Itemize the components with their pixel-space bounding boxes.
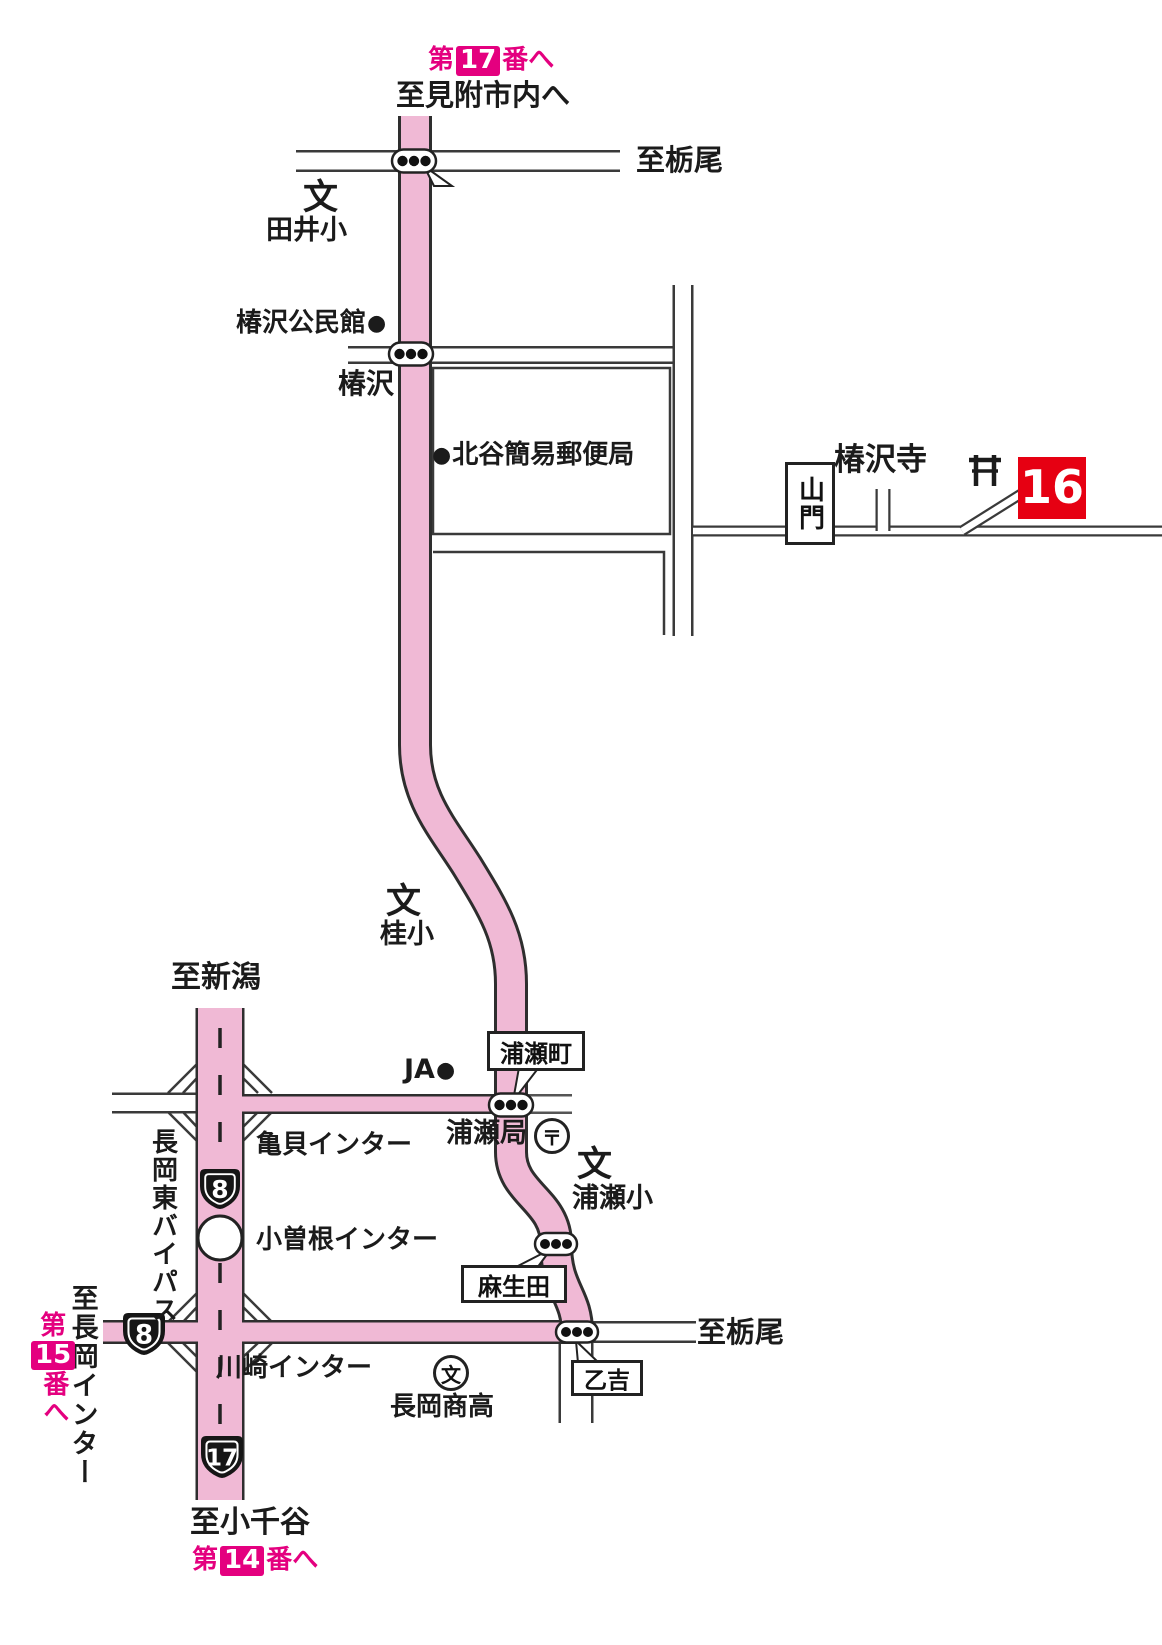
post-office-icon: 〒: [534, 1118, 570, 1154]
kawasaki-ic-label: 川崎インター: [216, 1355, 372, 1383]
tsubakizawa-temple-label: 椿沢寺: [834, 444, 927, 477]
to-temple17-link: 第17番へ: [428, 46, 554, 76]
kamegai-ic-label: 亀貝インター: [256, 1132, 412, 1160]
temple15-suffix: 番へ: [39, 1370, 67, 1426]
svg-text:8: 8: [135, 1320, 153, 1350]
signal-tai: [392, 150, 436, 173]
torii-icon: [969, 455, 1001, 486]
to-mitsuke-label: 至見附市内へ: [396, 80, 570, 111]
temple14-suffix: 番へ: [266, 1545, 318, 1575]
ja-label: JA●: [404, 1056, 455, 1085]
city-blocks: [433, 368, 670, 635]
to-tochio-north-label: 至栃尾: [636, 145, 723, 176]
tsubakizawa-community-center-label: 椿沢公民館●: [236, 310, 386, 338]
asoda-signal-box: 麻生田: [461, 1265, 567, 1303]
urasemachi-signal-box: 浦瀬町: [487, 1031, 585, 1071]
poi-dot-icon: ●: [436, 1059, 455, 1082]
katsura-elementary-label: 桂小: [380, 921, 434, 950]
temple14-prefix: 第: [192, 1545, 218, 1575]
community-center-text: 椿沢公民館: [236, 310, 366, 338]
pilgrimage-route-map: 16 8 8 17 第17番へ 至見附市内へ 至栃尾 文 田井小 椿沢公民館● …: [0, 0, 1162, 1645]
temple17-number-box: 17: [456, 46, 500, 76]
tsubakizawa-signal-label: 椿沢: [338, 369, 394, 399]
ja-text: JA: [404, 1056, 435, 1085]
temple15-prefix: 第: [40, 1313, 66, 1341]
temple17-prefix: 第: [428, 45, 454, 75]
temple14-number-box: 14: [220, 1546, 264, 1576]
temple17-suffix: 番へ: [502, 45, 554, 75]
kitadani-post-office-label: ●北谷簡易郵便局: [432, 442, 634, 470]
temple15-number-box: 15: [31, 1341, 75, 1371]
signal-tsubakizawa: [389, 343, 433, 366]
to-temple14-link: 第14番へ: [192, 1546, 318, 1576]
signal-urasemachi: [489, 1094, 533, 1117]
signal-otoyoshi: [556, 1322, 598, 1343]
poi-dot-icon: ●: [432, 444, 451, 467]
ozone-interchange-circle: [198, 1216, 242, 1260]
sanmon-gate-box: 山門: [785, 462, 835, 545]
urase-elementary-label: 浦瀬小: [572, 1185, 653, 1214]
to-tochio-south-label: 至栃尾: [697, 1317, 784, 1348]
tai-elementary-label: 田井小: [266, 217, 347, 246]
school-icon-urase: 文: [577, 1147, 612, 1184]
svg-text:8: 8: [211, 1175, 228, 1204]
school-icon-katsura: 文: [386, 884, 421, 921]
school-icon-tai: 文: [303, 180, 338, 217]
to-ojiya-label: 至小千谷: [190, 1507, 310, 1539]
signal-asoda: [535, 1233, 577, 1255]
map-canvas: 16 8 8 17: [0, 0, 1162, 1645]
temple16-marker: 16: [1018, 457, 1086, 519]
high-school-icon: 文: [433, 1355, 469, 1391]
temple16-number: 16: [1020, 460, 1084, 514]
poi-dot-icon: ●: [367, 312, 386, 335]
to-niigata-label: 至新潟: [171, 962, 261, 994]
urase-post-office-label: 浦瀬局: [446, 1120, 527, 1149]
nagaoka-shoko-label: 長岡商高: [390, 1394, 494, 1422]
kitadani-text: 北谷簡易郵便局: [452, 442, 634, 470]
ozone-ic-label: 小曽根インター: [256, 1227, 438, 1255]
to-temple15-link: 第 15 番へ: [29, 1313, 77, 1426]
bypass-name-label: 長岡東バイパス: [148, 1128, 176, 1318]
otoyoshi-signal-box: 乙吉: [571, 1360, 643, 1396]
svg-text:17: 17: [206, 1445, 238, 1471]
